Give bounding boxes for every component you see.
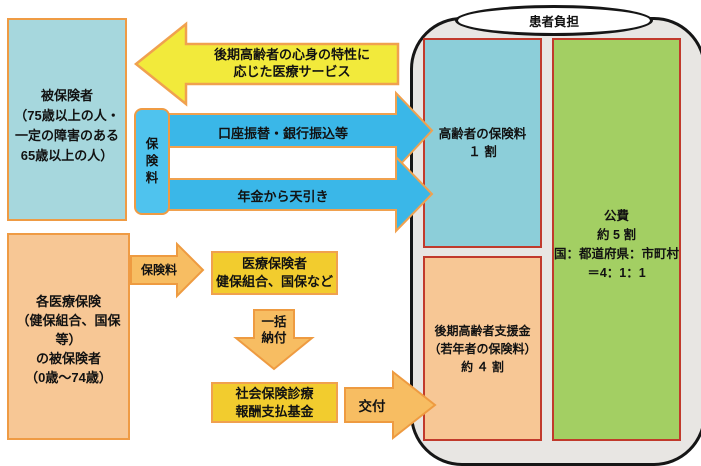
lump-sum-arrow-label: 一括 納付 [241, 314, 307, 346]
pension-deduction-arrow-label: 年金から天引き [172, 186, 394, 205]
premium-arrow-label: 保険料 [132, 261, 186, 278]
insurance-flow-diagram: 高齢者の保険料 １ 割 後期高齢者支援金 （若年者の保険料） 約 ４ 割 公費 … [0, 0, 701, 466]
bank-transfer-arrow-label: 口座振替・銀行振込等 [172, 123, 394, 142]
payment-fund-box: 社会保険診療 報酬支払基金 [211, 382, 338, 423]
patient-burden-ellipse: 患者負担 [455, 5, 653, 36]
public-funds-box: 公費 約 5 割 国：都道府県：市町村 ＝4：1：1 [552, 38, 681, 441]
support-fund-box: 後期高齢者支援金 （若年者の保険料） 約 ４ 割 [423, 256, 542, 441]
insured-box: 被保険者 （75歳以上の人・ 一定の障害のある 65歳以上の人） [7, 18, 127, 221]
grant-arrow-label: 交付 [349, 395, 395, 415]
premium-vertical-box: 保 険 料 [134, 108, 170, 215]
insurer-box: 医療保険者 健保組合、国保など [211, 251, 338, 295]
medical-service-arrow-label: 後期高齢者の心身の特性に 応じた医療サービス [186, 46, 398, 80]
elderly-premium-box: 高齢者の保険料 １ 割 [423, 38, 542, 248]
each-insurance-box: 各医療保険 （健保組合、国保等） の被保険者 （0歳～74歳） [7, 233, 130, 440]
